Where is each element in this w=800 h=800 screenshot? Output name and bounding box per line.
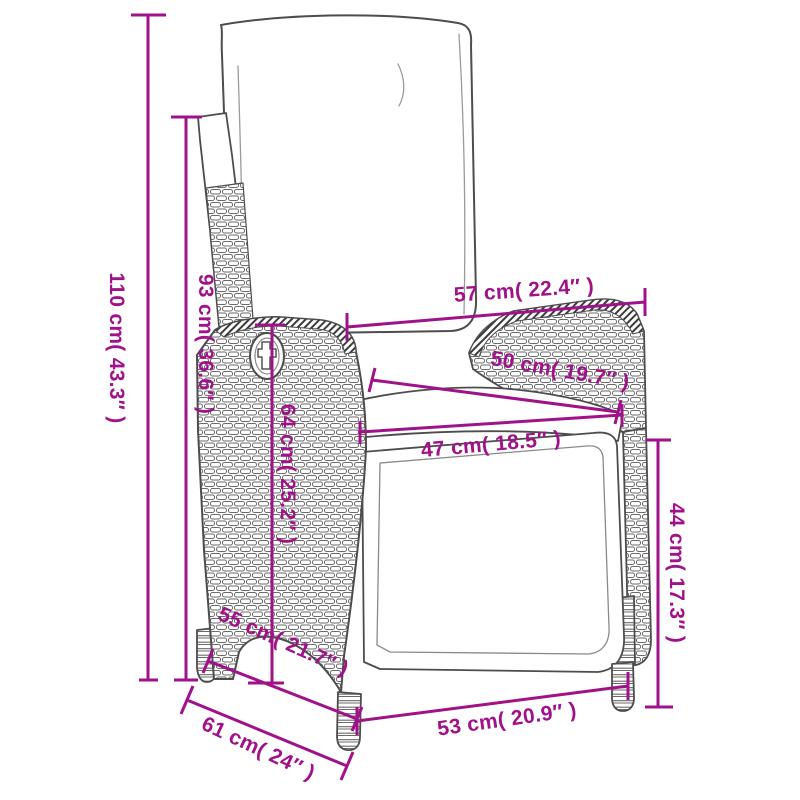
dimension-label-overall-height: 110 cm( 43.3″ ) bbox=[104, 272, 128, 423]
dimension-diagram: 110 cm( 43.3″ ) 93 cm( 36.6″ ) 57 cm( 22… bbox=[0, 0, 800, 800]
dimension-label-front-height: 44 cm( 17.3″ ) bbox=[664, 503, 688, 643]
dim-line-overall-height bbox=[131, 15, 166, 680]
back-cushion bbox=[221, 15, 476, 334]
front-panel bbox=[362, 433, 624, 672]
dimension-label-side-height: 64 cm( 25.2″ ) bbox=[275, 404, 299, 544]
recline-adjuster-knob bbox=[250, 333, 284, 379]
dimension-label-backrest-height: 93 cm( 36.6″ ) bbox=[193, 274, 217, 414]
